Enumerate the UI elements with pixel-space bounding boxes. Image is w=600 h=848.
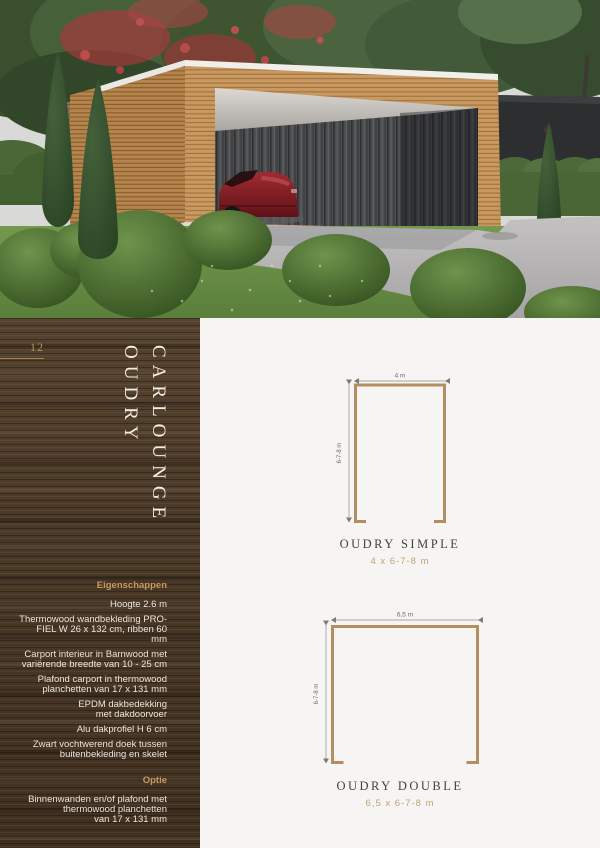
height-dimension-label: 6-7-8 m <box>314 684 320 705</box>
spec-item: EPDM dakbedekking met dakdoorvoer <box>18 700 167 720</box>
width-dimension-label: 6,5 m <box>397 612 413 619</box>
floorplan-outline <box>333 627 478 763</box>
page-number-rule <box>0 358 44 359</box>
diagram-subtitle: 6,5 x 6-7-8 m <box>310 798 490 809</box>
specifications-list: Eigenschappen Hoogte 2.6 m Thermowood wa… <box>18 581 167 830</box>
diagram-oudry-simple: 4 m 6-7-8 m <box>330 368 470 528</box>
caption-oudry-simple: OUDRY SIMPLE 4 x 6-7-8 m <box>310 537 490 567</box>
spec-item: Plafond carport in thermowood planchette… <box>18 675 167 695</box>
width-dimension-label: 4 m <box>395 373 406 380</box>
spec-item: Zwart vochtwerend doek tussen buitenbekl… <box>18 740 167 760</box>
product-title-line1: OUDRY <box>116 345 144 565</box>
diagram-subtitle: 4 x 6-7-8 m <box>310 556 490 567</box>
diagram-title: OUDRY SIMPLE <box>310 537 490 552</box>
carport-photo <box>0 0 600 318</box>
spec-item: Thermowood wandbekleding PRO- FIEL W 26 … <box>18 615 167 645</box>
spec-item: Alu dakprofiel H 6 cm <box>18 725 167 735</box>
sidebar: 12 OUDRY CARLOUNGE Eigenschappen Hoogte … <box>0 318 200 848</box>
carport-photo-illustration <box>0 0 600 318</box>
height-dimension-label: 6-7-8 m <box>337 443 343 464</box>
option-item: Binnenwanden en/of plafond met thermowoo… <box>18 795 167 825</box>
diagram-title: OUDRY DOUBLE <box>310 779 490 794</box>
caption-oudry-double: OUDRY DOUBLE 6,5 x 6-7-8 m <box>310 779 490 809</box>
specs-heading: Eigenschappen <box>18 581 167 591</box>
brochure-page: 12 OUDRY CARLOUNGE Eigenschappen Hoogte … <box>0 0 600 848</box>
product-title-vertical: OUDRY CARLOUNGE <box>116 345 172 565</box>
spec-item: Carport interieur in Barnwood met variër… <box>18 650 167 670</box>
spec-item: Hoogte 2.6 m <box>18 600 167 610</box>
floorplan-outline <box>356 385 445 522</box>
page-number: 12 <box>0 340 44 355</box>
option-heading: Optie <box>18 776 167 786</box>
carport-interior-shadow <box>400 108 478 230</box>
diagram-oudry-double: 6,5 m 6-7-8 m <box>310 608 500 772</box>
product-title-line2: CARLOUNGE <box>144 345 172 565</box>
